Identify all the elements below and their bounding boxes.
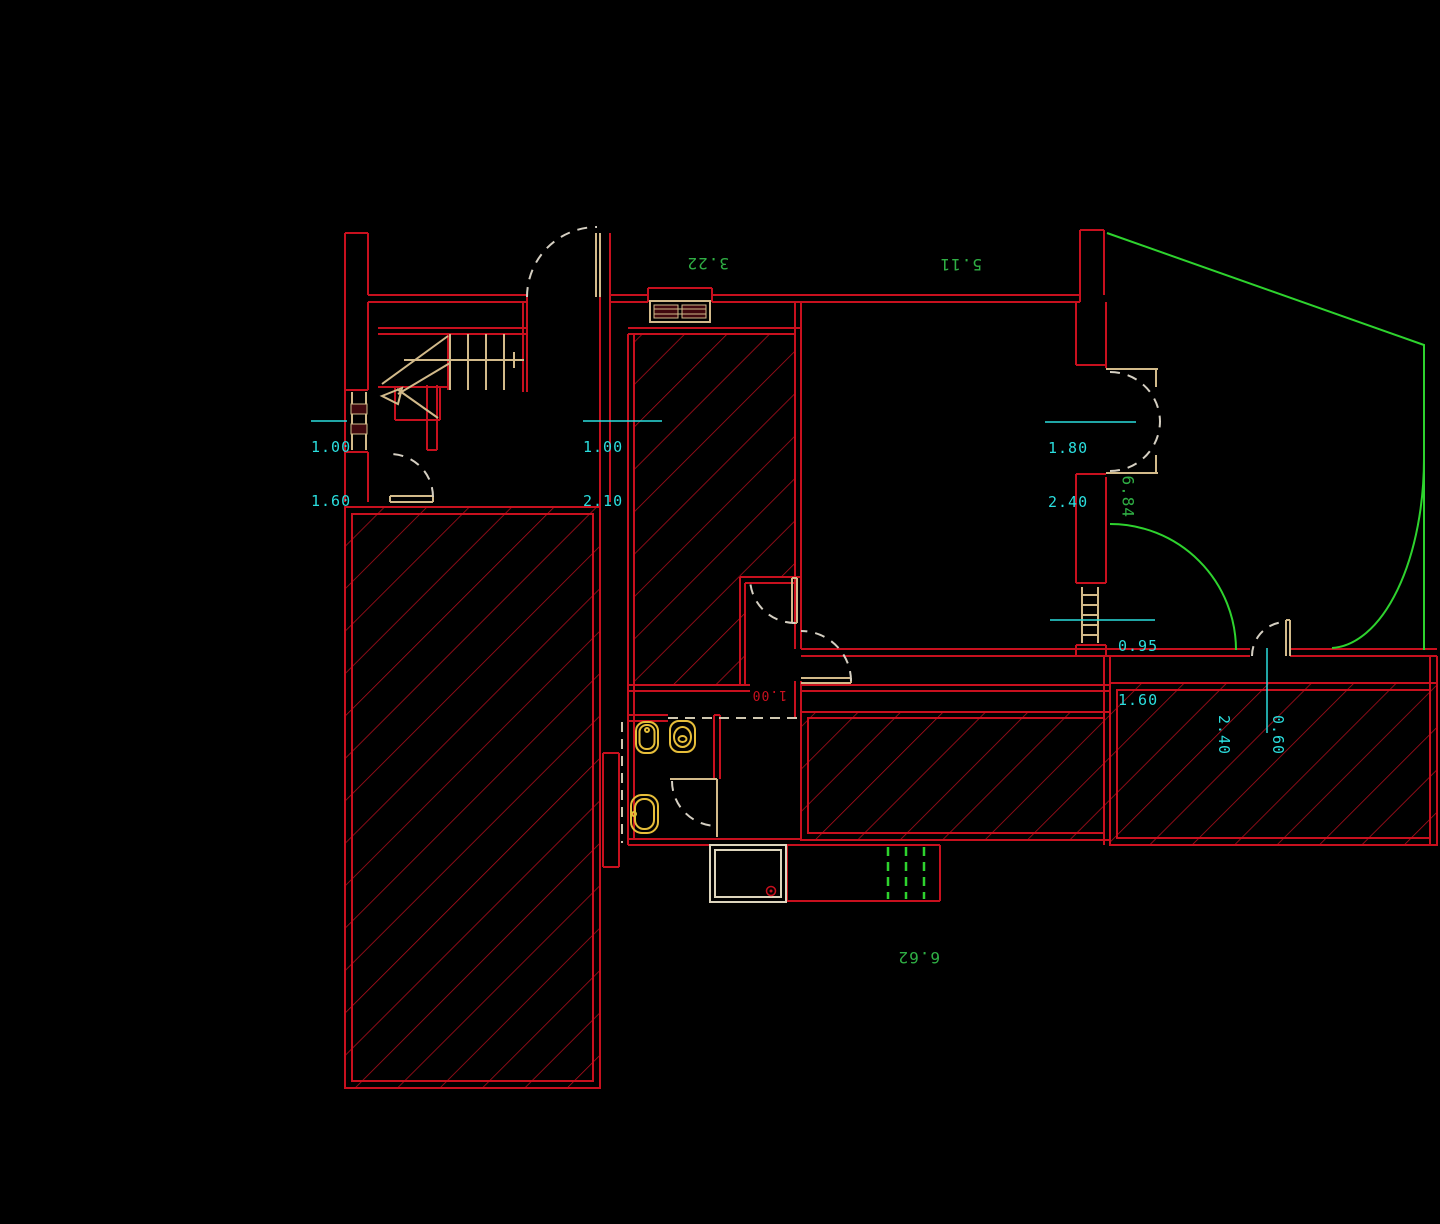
dim-value-below: 1.60 bbox=[311, 492, 351, 510]
bathroom-fixtures bbox=[631, 721, 695, 833]
hidden-lines bbox=[622, 718, 798, 843]
window-left-pane bbox=[351, 404, 367, 414]
dim-value-below: 2.40 bbox=[1215, 713, 1233, 757]
floor-plan-drawing bbox=[0, 0, 1440, 1224]
dim-value-below: 2.40 bbox=[1048, 493, 1088, 511]
dimension-small-door: 0.60 2.40 bbox=[1197, 713, 1323, 757]
toilet-drain bbox=[679, 736, 687, 742]
window-top-pane bbox=[682, 305, 706, 318]
annotation-right-height: 6.84 bbox=[1119, 476, 1138, 520]
room-hatch-center bbox=[634, 334, 795, 685]
sink-inner bbox=[635, 799, 654, 829]
green-dashed-grate bbox=[888, 847, 924, 899]
shower-drain-dot bbox=[770, 890, 773, 893]
dimension-hall-door: 1.00 2.10 bbox=[583, 402, 623, 528]
terrace-hatch-left bbox=[345, 507, 600, 1088]
terrace-hatch-mid bbox=[801, 712, 1110, 840]
hatch-regions bbox=[345, 334, 1437, 1088]
dimension-left-window: 1.00 1.60 bbox=[311, 402, 351, 528]
annotation-top-width-left: 3.22 bbox=[685, 254, 729, 273]
dim-value-above: 0.95 bbox=[1118, 637, 1158, 655]
annotation-bottom-width: 6.62 bbox=[896, 948, 940, 967]
dim-value-below: 1.60 bbox=[1118, 691, 1158, 709]
annotation-top-width-right: 5.11 bbox=[938, 255, 982, 274]
annotation-bath-door-width: 1.00 bbox=[753, 687, 787, 702]
window-top-pane bbox=[654, 305, 678, 318]
bidet-drain bbox=[645, 728, 649, 732]
dim-value-above: 1.00 bbox=[583, 438, 623, 456]
dimension-double-door: 1.80 2.40 bbox=[1048, 403, 1088, 529]
dim-value-above: 1.80 bbox=[1048, 439, 1088, 457]
dim-value-above: 1.00 bbox=[311, 438, 351, 456]
terrace-hatch-right bbox=[1110, 683, 1437, 845]
cad-drawing-canvas: 1.00 1.60 1.00 2.10 1.80 2.40 0.95 1.60 … bbox=[0, 0, 1440, 1224]
dim-value-above: 0.60 bbox=[1269, 713, 1287, 757]
dim-value-below: 2.10 bbox=[583, 492, 623, 510]
window-left-pane bbox=[351, 424, 367, 434]
dimension-right-window: 0.95 1.60 bbox=[1118, 601, 1158, 727]
